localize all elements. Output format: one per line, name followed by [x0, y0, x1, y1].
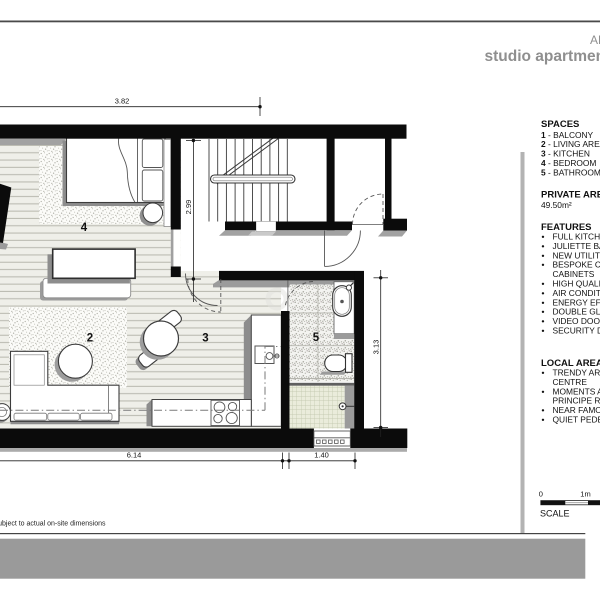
svg-text:3: 3: [202, 333, 208, 345]
svg-text:2: 2: [87, 333, 93, 345]
svg-text:QUIET PEDESTRIAN ST: QUIET PEDESTRIAN ST: [553, 415, 600, 425]
svg-text:•: •: [542, 260, 545, 270]
svg-text:•: •: [542, 415, 545, 425]
svg-text:2.99: 2.99: [184, 200, 193, 215]
svg-text:SPACES: SPACES: [541, 119, 579, 130]
svg-text:6.14: 6.14: [127, 451, 142, 460]
svg-text:0: 0: [539, 490, 543, 499]
svg-text:•: •: [542, 326, 545, 336]
svg-text:5: 5: [313, 332, 320, 344]
svg-text:All sizes are approximate and: All sizes are approximate and subject to…: [0, 521, 106, 528]
svg-text:4: 4: [81, 222, 88, 234]
svg-text:1m: 1m: [580, 490, 590, 499]
svg-text:SCALE: SCALE: [540, 509, 570, 519]
svg-text:3.82: 3.82: [115, 97, 130, 106]
svg-text:5 - BATHROOM: 5 - BATHROOM: [541, 167, 600, 177]
svg-text:1.40: 1.40: [314, 451, 329, 460]
svg-text:3.13: 3.13: [372, 340, 381, 355]
svg-text:49.50m²: 49.50m²: [541, 200, 572, 210]
svg-text:•: •: [542, 386, 545, 396]
svg-text:AP: AP: [590, 33, 600, 47]
svg-text:PRIVATE AREA: PRIVATE AREA: [541, 189, 600, 200]
svg-text:SECURITY DOOR: SECURITY DOOR: [553, 326, 600, 336]
svg-text:studio apartment: studio apartment: [485, 48, 600, 65]
svg-text:•: •: [542, 368, 545, 378]
